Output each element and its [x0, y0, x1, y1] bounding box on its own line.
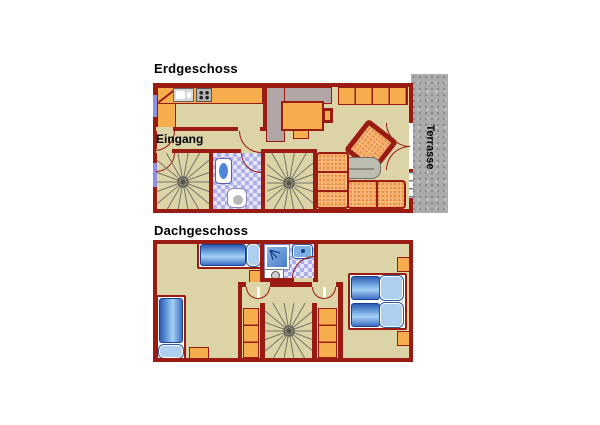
- stove-icon: [196, 88, 212, 102]
- desk-chair-bottom: [293, 130, 309, 139]
- bed-mattress: [159, 298, 183, 343]
- terrace-label: Terrasse: [424, 118, 436, 176]
- wall: [209, 153, 213, 211]
- coffee-table-line: [348, 168, 374, 170]
- floor-title-erdgeschoss: Erdgeschoss: [154, 61, 238, 76]
- desk-chair-right: [322, 108, 333, 123]
- spiral-staircase: [265, 303, 312, 358]
- bed-mattress: [351, 276, 380, 300]
- spiral-staircase: [157, 153, 209, 209]
- shower-spray-icon: [267, 247, 283, 263]
- door-leaf: [257, 287, 260, 298]
- wall: [313, 153, 317, 211]
- toilet: [227, 188, 247, 208]
- wardrobe-right: [318, 308, 337, 358]
- wall: [263, 83, 267, 131]
- door-leaf: [323, 287, 326, 298]
- sofa-cushion-line: [318, 190, 347, 192]
- wall: [260, 240, 264, 282]
- bed-pillow: [247, 244, 260, 266]
- wall: [153, 240, 413, 244]
- wall: [261, 153, 265, 211]
- wall: [153, 240, 157, 362]
- desk: [281, 101, 324, 131]
- kitchen-sink-icon: [173, 88, 194, 102]
- wall: [153, 209, 413, 213]
- spiral-staircase: [267, 153, 313, 209]
- bed-pillow: [380, 303, 403, 327]
- door-opening: [294, 278, 313, 282]
- wall: [153, 358, 413, 362]
- basin-drain: [301, 249, 305, 253]
- wall: [238, 287, 242, 358]
- bed-mattress: [351, 303, 380, 327]
- window: [153, 95, 157, 117]
- bed-pillow: [159, 345, 183, 358]
- sofa-cushion-line: [318, 171, 347, 173]
- wall: [312, 303, 317, 358]
- window: [409, 172, 413, 198]
- wall: [338, 287, 343, 358]
- kitchen-counter-side: [157, 103, 176, 128]
- wash-basin: [215, 158, 232, 184]
- sink-basin: [176, 91, 185, 99]
- toilet-bowl: [233, 195, 243, 205]
- shower: [265, 245, 289, 269]
- bed-mattress: [200, 244, 246, 266]
- entrance-label: Eingang: [156, 132, 203, 146]
- cabinet-row: [338, 87, 408, 105]
- sofa-cushion-line: [376, 182, 378, 207]
- floorplan-canvas: Erdgeschoss Terrasse: [0, 0, 600, 425]
- sofa-horizontal: [347, 180, 406, 209]
- wall: [153, 83, 413, 87]
- wardrobe-left: [243, 308, 259, 358]
- wall: [409, 240, 413, 362]
- sink-drainer: [187, 92, 191, 98]
- basin-bowl: [219, 163, 228, 179]
- floor-title-dachgeschoss: Dachgeschoss: [154, 223, 248, 238]
- bed-pillow: [380, 276, 403, 300]
- sofa-vertical: [316, 152, 349, 209]
- wall: [314, 240, 318, 282]
